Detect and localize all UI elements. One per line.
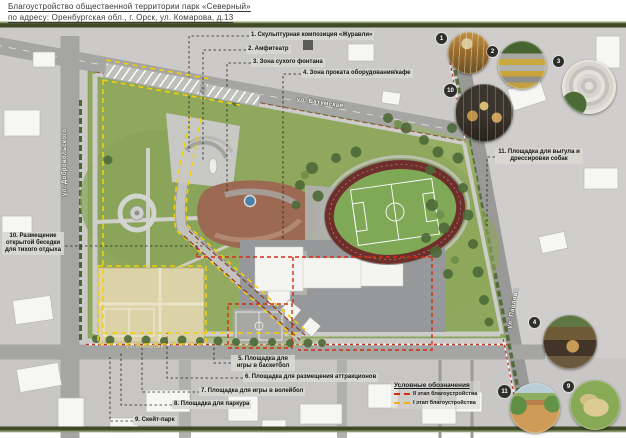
title-line-2: по адресу: Оренбургская обл., г. Орск, у…	[8, 13, 251, 24]
tree	[426, 199, 438, 211]
photo-skate-park	[570, 380, 620, 430]
callout-7: 7. Площадка для игры в волейбол	[199, 387, 305, 396]
tree	[383, 113, 393, 123]
sculpture-zhuravli	[209, 158, 217, 174]
building	[348, 44, 374, 61]
tree	[473, 267, 484, 278]
dry-fountain	[245, 196, 256, 207]
callout-5: 5. Площадка для игры в баскетбол	[231, 355, 295, 371]
round-plaza-dot	[135, 211, 140, 216]
tree	[458, 183, 468, 193]
callout-8: 8. Площадка для паркура	[172, 400, 251, 409]
legend-label-stage1: I этап благоустройства	[413, 399, 476, 408]
legend-row-stage2: II этап благоустройства	[394, 390, 477, 399]
tree	[421, 233, 431, 243]
callout-9: 9. Скейт-парк	[133, 416, 177, 425]
tree	[104, 156, 113, 165]
tree	[124, 335, 132, 343]
legend-row-stage1: I этап благоустройства	[394, 399, 477, 408]
callout-10: 10. Размещение открытой беседки для тихо…	[2, 232, 64, 255]
tree	[447, 123, 457, 133]
building	[584, 168, 618, 189]
bush	[301, 171, 309, 179]
legend-label-stage2: II этап благоустройства	[413, 390, 477, 399]
street-label-bottom: ул. Комарова	[126, 344, 164, 350]
tree	[232, 338, 240, 346]
photo-badge-4: 4	[529, 317, 540, 328]
photo-dog-area	[510, 383, 560, 433]
building	[300, 404, 342, 424]
tree	[318, 339, 326, 347]
tree	[106, 336, 115, 345]
tree	[351, 147, 362, 158]
photo-gazebo	[455, 84, 513, 142]
building	[13, 295, 54, 324]
band-top-dark	[0, 23, 626, 27]
bush	[451, 256, 459, 264]
callout-4: 4. Зона проката оборудования/кафе	[301, 69, 413, 78]
tree	[313, 191, 324, 202]
bush	[436, 211, 445, 220]
photo-badge-9: 9	[563, 381, 574, 392]
legend: Условные обозначения II этап благоустрой…	[391, 381, 480, 409]
tree	[433, 147, 444, 158]
building	[4, 110, 40, 136]
street-label-left: ул. Добровольского	[62, 129, 68, 196]
stage1-dash-swatch	[394, 402, 410, 404]
photo-badge-3: 3	[553, 56, 564, 67]
callout-11: 11. Площадка для выгула и дрессировки со…	[495, 148, 583, 164]
tree	[485, 318, 494, 327]
tree	[178, 336, 187, 345]
callout-3: 3. Зона сухого фонтана	[251, 58, 325, 67]
page-title: Благоустройство общественной территории …	[8, 2, 251, 24]
tree	[250, 338, 259, 347]
photo-badge-1: 1	[436, 33, 447, 44]
tree	[401, 123, 412, 134]
tree	[295, 180, 305, 190]
tree	[214, 337, 223, 346]
tree	[425, 165, 435, 175]
callout-6: 6. Площадка для размещения аттракционов	[243, 373, 378, 382]
callout-2: 2. Амфитеатр	[246, 45, 291, 54]
tree	[468, 239, 478, 249]
photo-cafe	[543, 315, 597, 369]
school-building	[303, 258, 361, 288]
tree	[439, 223, 450, 234]
building	[58, 398, 84, 428]
tree	[453, 153, 464, 164]
title-line-1: Благоустройство общественной территории …	[8, 2, 251, 13]
photo-amphitheater	[498, 41, 546, 89]
stage2-dash-swatch	[394, 393, 410, 395]
photo-sculpture	[448, 32, 490, 74]
school-building	[255, 247, 303, 291]
tree	[479, 295, 489, 305]
building	[33, 52, 55, 67]
legend-header: Условные обозначения	[394, 382, 477, 389]
tree	[443, 269, 453, 279]
tree	[292, 201, 301, 210]
tree	[331, 153, 341, 163]
photo-badge-2: 2	[487, 46, 498, 57]
bush	[394, 120, 402, 128]
tree	[268, 338, 276, 346]
photo-dry-fountain	[562, 60, 616, 114]
building	[381, 91, 400, 105]
tree	[419, 135, 429, 145]
presentation-slide: Благоустройство общественной территории …	[0, 0, 626, 438]
building-dark	[303, 40, 313, 50]
tree	[463, 210, 474, 221]
tree	[304, 339, 313, 348]
photo-badge-10: 10	[444, 84, 457, 97]
callout-1: 1. Скульптурная композиция «Журавли»	[249, 31, 374, 40]
tree	[286, 339, 294, 347]
photo-badge-11: 11	[498, 385, 511, 398]
tree	[430, 246, 442, 258]
